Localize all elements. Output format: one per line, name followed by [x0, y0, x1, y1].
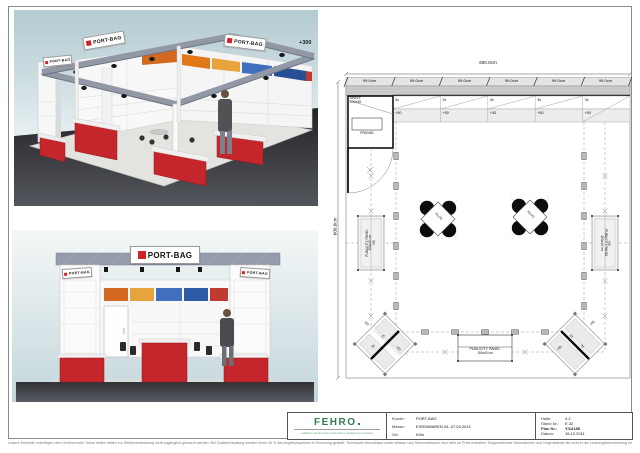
shelf-qty: 3x — [537, 98, 541, 102]
shelf-qty: 3x — [395, 98, 399, 102]
wall-connector-nodes — [394, 153, 587, 335]
segment-dim: 99.0cm — [582, 79, 629, 83]
company-tagline: exhibition service and construction mana… — [294, 429, 380, 435]
brand-text: PORT-BAG — [49, 58, 70, 64]
render-front-view: PORT-BAG PORT-BAG PORT-BAG — [12, 230, 318, 402]
corner-counter-left — [352, 311, 417, 376]
plan-total-width-dim: 600.0cm — [346, 61, 630, 66]
shelf-height: +50 — [395, 111, 401, 115]
panel-line2: 150x40 cm — [600, 235, 603, 251]
publicity-panel-right-label: +50 PUBLICITY PANEL 150x40 cm — [592, 216, 618, 270]
portbag-sign-main: PORT-BAG — [130, 246, 200, 264]
field-row: Plan Nr.: Y/12135 — [541, 426, 627, 431]
segment-dim: 99.0cm — [393, 79, 440, 83]
publicity-panel-bottom-label: PUBLICITY PANEL 150x40 cm — [458, 348, 512, 355]
render-perspective-view: PORT-BAG PORT-BAG PORT-BAG — [14, 10, 318, 206]
field-value: Köln — [416, 432, 424, 437]
segment-dim: 99.0cm — [441, 79, 488, 83]
field-label: Stand Nr.: — [541, 421, 565, 426]
logo-dot-icon — [358, 423, 361, 426]
brand-text: PORT-BAG — [93, 34, 122, 45]
top-wall — [346, 86, 630, 96]
portbag-logo-icon — [64, 272, 67, 275]
shelf-height: +50 — [442, 111, 448, 115]
plan-total-height-dim: 600.0cm — [334, 202, 339, 250]
field-value: EISENWAREN 04.-07.03.2012 — [416, 424, 471, 429]
corner-counter-right — [542, 311, 607, 376]
shelf-height: +50 — [490, 111, 496, 115]
brand-text: PORT-BAG — [69, 270, 90, 275]
brand-text: PORT-BAG — [247, 270, 268, 275]
spotlights — [104, 267, 202, 272]
project-fields: Kunde: PORT-BAG Messe: EISENWAREN 04.-07… — [386, 413, 535, 439]
field-label: Ort: — [392, 432, 416, 437]
shelf-height: +50 — [537, 111, 543, 115]
fridge-label: FRIDGE — [352, 132, 382, 136]
storage-shelf-label: SHELF 100x30 — [350, 97, 362, 105]
portbag-sign-tower-right: PORT-BAG — [240, 267, 271, 279]
field-row: Ort: Köln — [392, 432, 530, 437]
field-label: Datum: — [541, 431, 565, 436]
field-row: Halle: 4.2 — [541, 416, 627, 421]
field-row: Messe: EISENWAREN 04.-07.03.2012 — [392, 424, 530, 429]
disclaimer-text: Unsere Entwürfe unterliegen dem Urheberr… — [8, 441, 632, 445]
dark-floor — [16, 380, 314, 402]
shelf-rows — [393, 96, 630, 122]
field-value: 15.12.2011 — [565, 431, 585, 436]
sheet-fields: Halle: 4.2 Stand Nr.: E.32 Plan Nr.: Y/1… — [535, 413, 632, 439]
field-value: PORT-BAG — [416, 416, 437, 421]
portbag-logo-icon — [227, 38, 233, 44]
shelf-height: +50 — [585, 111, 591, 115]
field-label: Halle: — [541, 416, 565, 421]
company-logo-text: FEHRO — [314, 417, 357, 428]
panel-plus: +50 — [373, 240, 376, 245]
logo-row: FEHRO — [314, 417, 360, 428]
shelf-qty: 3x — [442, 98, 446, 102]
field-value: 4.2 — [565, 416, 571, 421]
floor-plan: 600.0cm 600.0cm 99.0cm 99.0cm 99.0cm 99.… — [330, 56, 632, 412]
portbag-logo-icon — [44, 61, 47, 64]
height-dimension-label: +300 — [299, 40, 311, 46]
portbag-logo-icon — [242, 271, 245, 274]
field-label: Plan Nr.: — [541, 426, 565, 431]
perspective-scene — [14, 10, 318, 206]
segment-dim: 99.0cm — [346, 79, 393, 83]
publicity-panel-left-label: PUBLICITY PANEL 150x40 cm +50 — [358, 216, 384, 270]
field-row: Stand Nr.: E.32 — [541, 421, 627, 426]
portbag-logo-icon — [138, 251, 146, 259]
field-label: Kunde: — [392, 416, 416, 421]
field-value: E.32 — [565, 421, 573, 426]
field-value: Y/12135 — [565, 426, 580, 431]
title-block: FEHRO exhibition service and constructio… — [287, 412, 633, 440]
portbag-logo-icon — [86, 40, 92, 46]
brand-text: PORT-BAG — [148, 251, 193, 260]
field-row: Datum: 15.12.2011 — [541, 431, 627, 436]
shelf-qty: 3x — [585, 98, 589, 102]
storage-shelf-line2: 100x30 — [350, 101, 362, 105]
segment-dim: 99.0cm — [488, 79, 535, 83]
portbag-sign-tower-left: PORT-BAG — [62, 267, 93, 279]
segment-dim: 99.0cm — [535, 79, 582, 83]
panel-line2: 150x40 cm — [458, 352, 512, 355]
field-row: Kunde: PORT-BAG — [392, 416, 530, 421]
company-logo-cell: FEHRO exhibition service and constructio… — [288, 413, 386, 439]
storage-door — [348, 148, 393, 193]
shelf-qty: 3x — [490, 98, 494, 102]
person-figure — [218, 90, 232, 154]
field-label: Messe: — [392, 424, 416, 429]
brand-text: PORT-BAG — [234, 38, 263, 47]
